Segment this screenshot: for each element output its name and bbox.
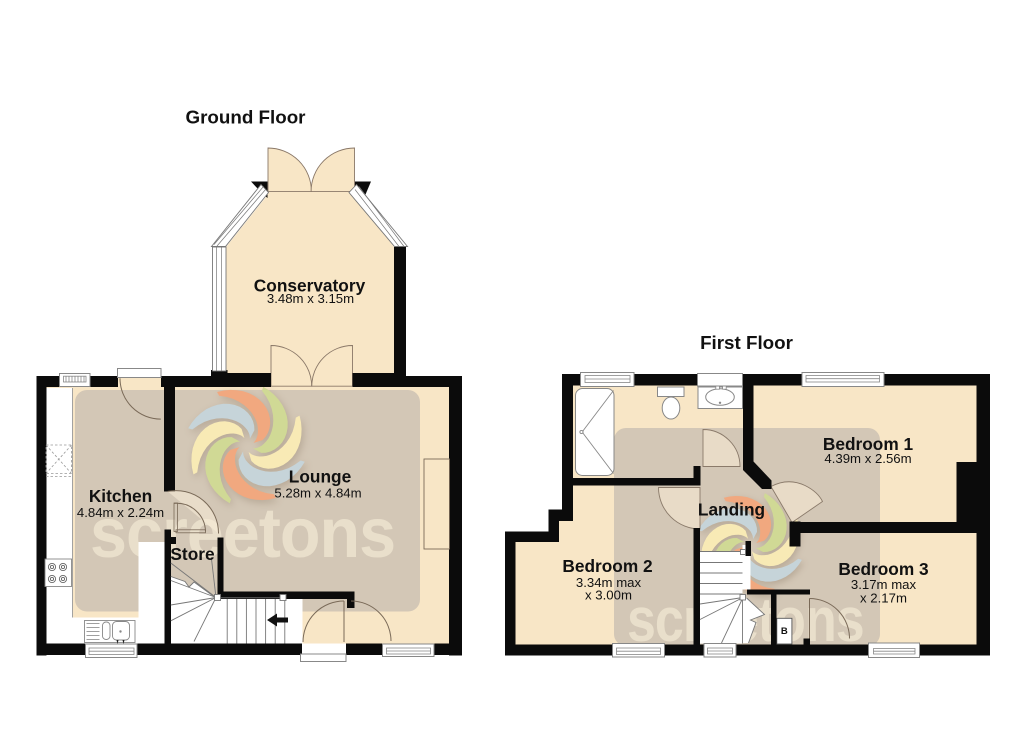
svg-text:x 2.17m: x 2.17m [860, 591, 907, 606]
svg-text:Kitchen: Kitchen [89, 486, 152, 506]
svg-text:First Floor: First Floor [700, 332, 794, 353]
svg-text:3.48m x 3.15m: 3.48m x 3.15m [267, 291, 354, 306]
svg-text:x 3.00m: x 3.00m [585, 588, 632, 603]
svg-text:Landing: Landing [698, 499, 765, 519]
svg-text:4.39m x 2.56m: 4.39m x 2.56m [824, 451, 911, 466]
svg-text:Lounge: Lounge [289, 467, 352, 487]
svg-text:Bedroom 2: Bedroom 2 [562, 556, 652, 576]
svg-text:Ground Floor: Ground Floor [186, 107, 307, 128]
svg-text:Bedroom 3: Bedroom 3 [838, 559, 928, 579]
svg-text:5.28m x 4.84m: 5.28m x 4.84m [274, 486, 361, 501]
svg-text:Store: Store [170, 544, 215, 564]
svg-text:4.84m x 2.24m: 4.84m x 2.24m [77, 505, 164, 520]
svg-text:B: B [781, 626, 788, 637]
